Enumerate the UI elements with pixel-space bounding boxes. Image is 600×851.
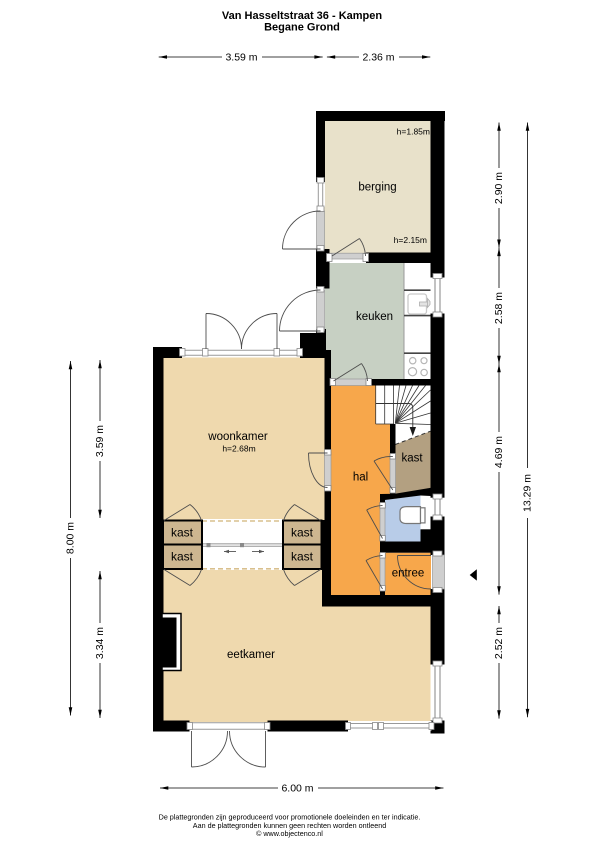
- svg-text:kast: kast: [171, 526, 194, 540]
- svg-text:2.52 m: 2.52 m: [493, 627, 505, 659]
- svg-text:eetkamer: eetkamer: [227, 649, 275, 661]
- svg-text:Van Hasseltstraat 36 - Kampen: Van Hasseltstraat 36 - Kampen: [222, 10, 382, 22]
- svg-text:2.58 m: 2.58 m: [493, 292, 505, 324]
- svg-text:hal: hal: [353, 472, 368, 484]
- svg-text:kast: kast: [291, 550, 314, 564]
- svg-text:kast: kast: [171, 550, 194, 564]
- svg-text:berging: berging: [358, 182, 396, 194]
- svg-text:kast: kast: [401, 453, 423, 465]
- svg-text:keuken: keuken: [356, 311, 393, 323]
- svg-text:kast: kast: [291, 526, 314, 540]
- svg-text:h=1.85m: h=1.85m: [397, 127, 430, 137]
- svg-text:3.59 m: 3.59 m: [94, 425, 106, 457]
- svg-text:13.29 m: 13.29 m: [522, 474, 534, 512]
- svg-text:h=2.68m: h=2.68m: [222, 444, 255, 454]
- svg-text:4.69 m: 4.69 m: [493, 436, 505, 468]
- svg-text:woonkamer: woonkamer: [207, 431, 268, 443]
- svg-text:Begane Grond: Begane Grond: [264, 22, 340, 34]
- svg-text:6.00 m: 6.00 m: [281, 783, 313, 795]
- svg-text:2.90 m: 2.90 m: [493, 172, 505, 204]
- svg-text:entree: entree: [392, 568, 425, 580]
- svg-text:3.34 m: 3.34 m: [94, 627, 106, 659]
- svg-text:8.00 m: 8.00 m: [65, 522, 77, 554]
- svg-text:2.36 m: 2.36 m: [362, 52, 394, 64]
- svg-text:3.59 m: 3.59 m: [225, 52, 257, 64]
- svg-text:© www.objectenco.nl: © www.objectenco.nl: [256, 829, 323, 838]
- svg-text:h=2.15m: h=2.15m: [394, 235, 427, 245]
